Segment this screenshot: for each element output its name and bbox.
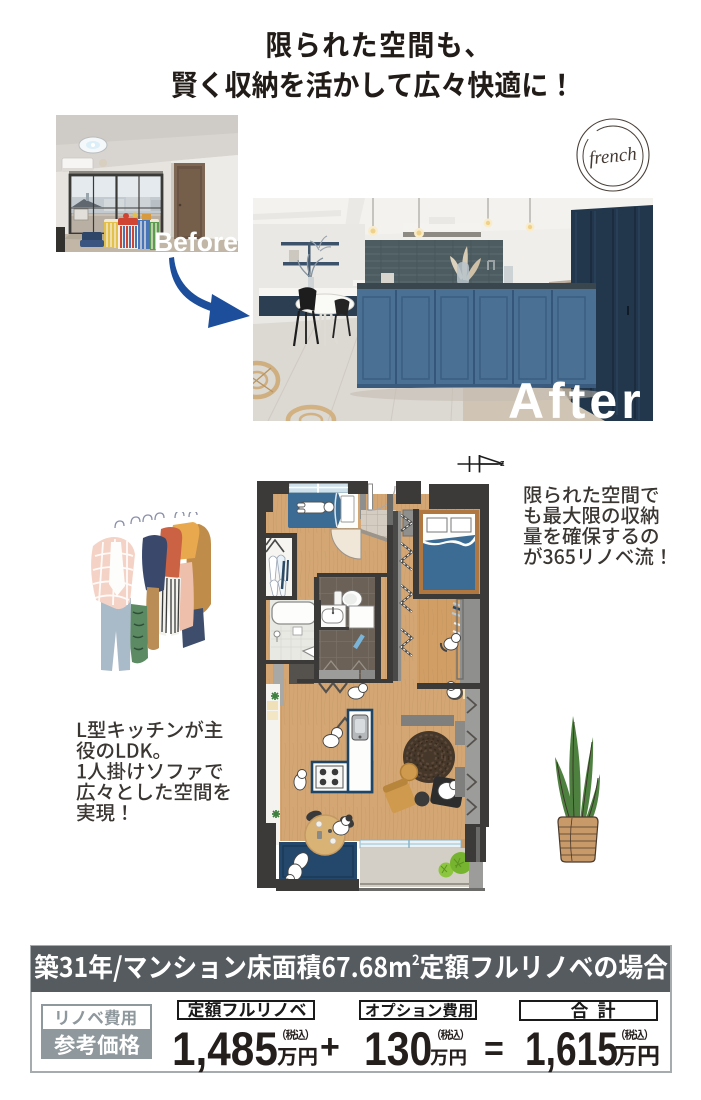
svg-text:french: french bbox=[588, 144, 638, 170]
svg-text:z: z bbox=[500, 458, 505, 468]
